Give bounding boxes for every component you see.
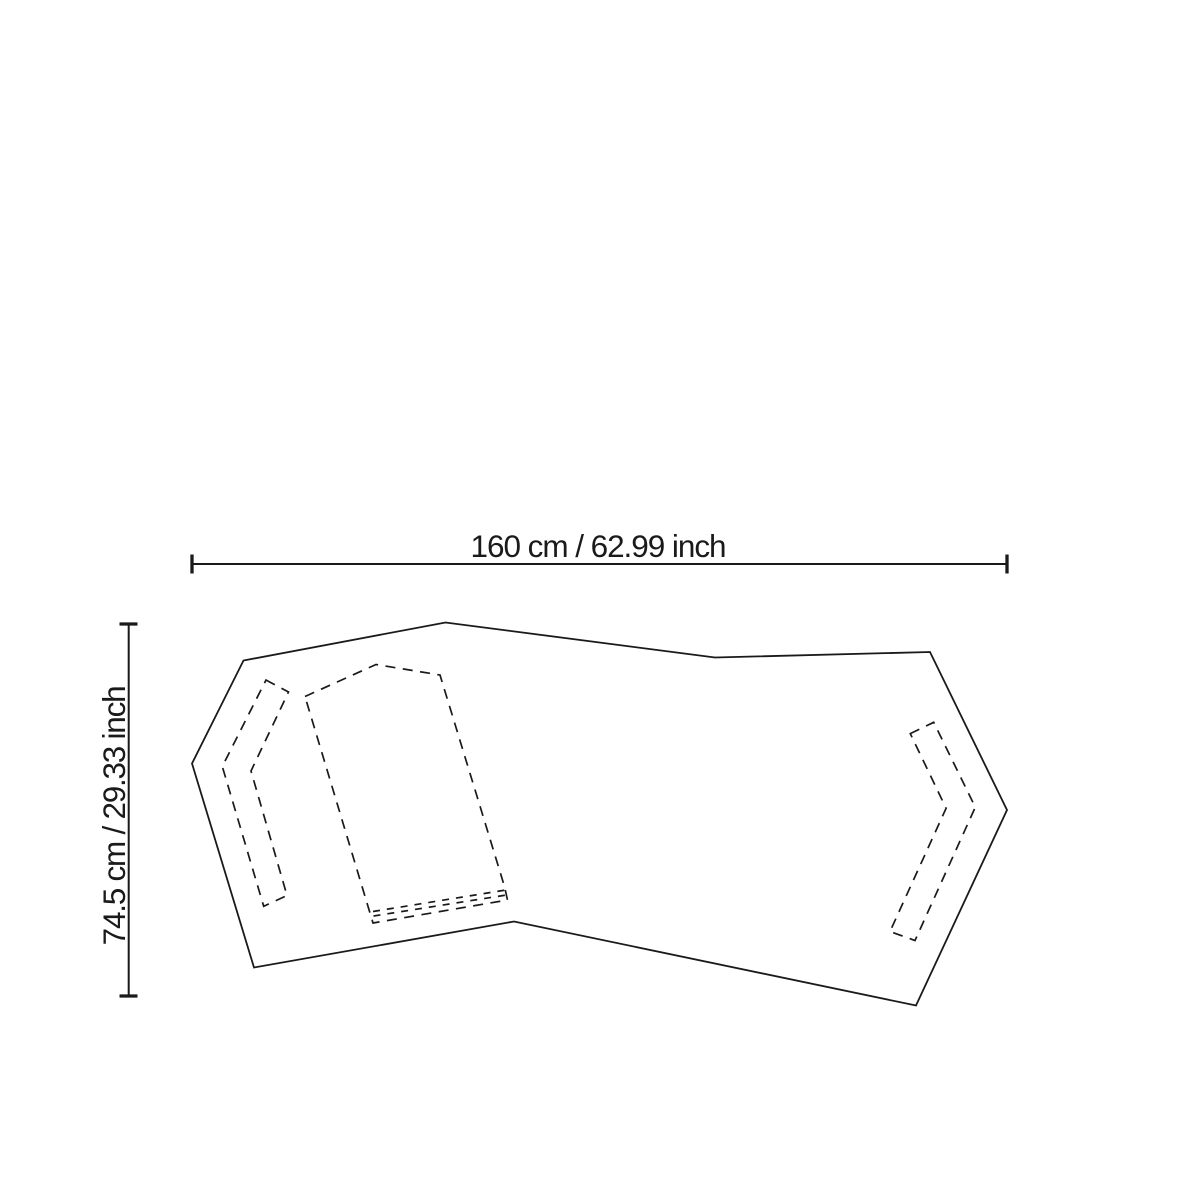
svg-text:160 cm / 62.99 inch: 160 cm / 62.99 inch bbox=[471, 528, 726, 564]
svg-text:74.5 cm / 29.33 inch: 74.5 cm / 29.33 inch bbox=[96, 687, 132, 946]
